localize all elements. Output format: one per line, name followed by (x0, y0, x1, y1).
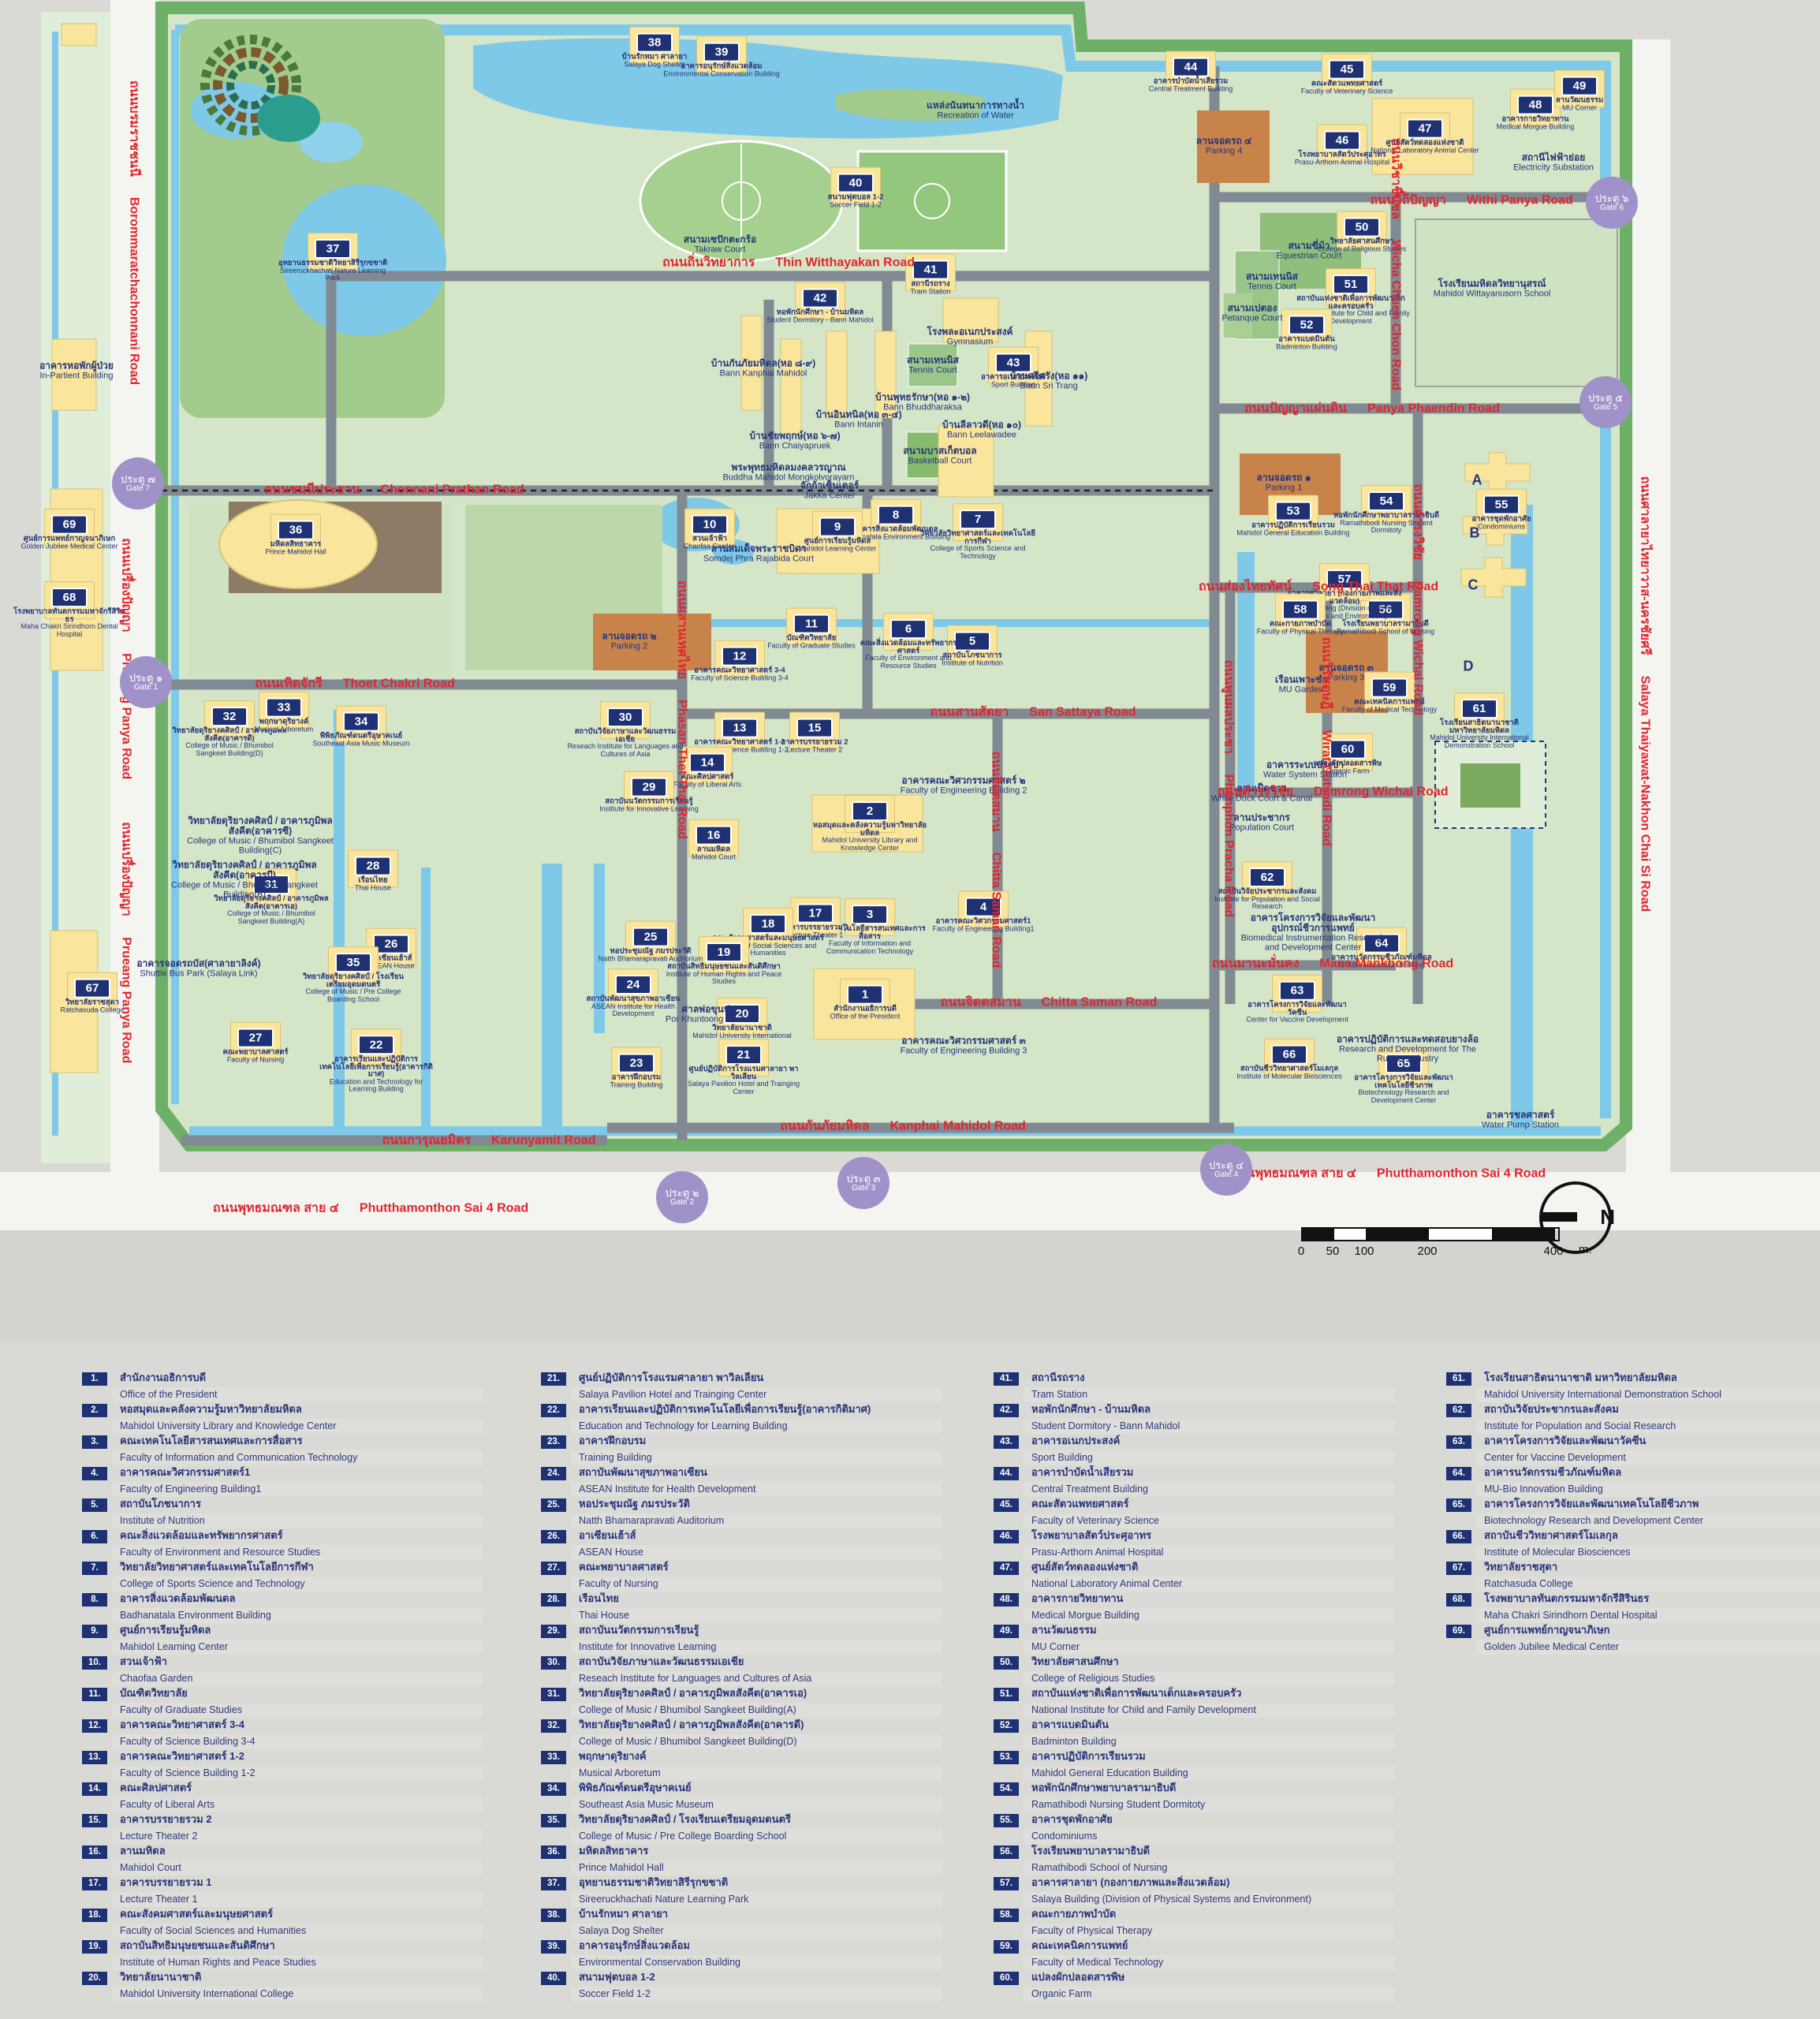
legend-english-name: Soccer Field 1-2 (571, 1987, 942, 2002)
en-text: Organic Farm (1289, 767, 1407, 774)
legend-number-badge: 16. (82, 1845, 107, 1859)
building-shape-21 (718, 1039, 769, 1077)
th-text: อาคารบรรยายรวม 2 (755, 739, 874, 747)
th-text: หอประชุมณัฐ ภมรประวัติ (591, 948, 710, 956)
legend-entry-text: วิทยาลัยดุริยางคศิลป์ / อาคารภูมิพลสังคี… (571, 1718, 942, 1749)
building-shape-52 (1281, 309, 1332, 347)
th-text: อาคารคณะวิศวกรรมศาสตร์ ๓ (889, 1036, 1039, 1046)
marker-caption-26: อาเซียนเฮ้าส์ASEAN House (332, 955, 450, 970)
building-shape-29 (624, 771, 674, 809)
en-text: Faculty of Information and Communication… (811, 941, 929, 955)
th-text: วิทยาลัยดุริยางคศิลป์ / โรงเรียนเตรียมอุ… (294, 973, 412, 988)
th-text: พระพุทธมหิดลมงคลวรญาณ (714, 462, 863, 472)
legend-number-badge: 47. (994, 1562, 1019, 1575)
road-label-23: ถนนพุทธมณฑล สาย ๔Phutthamonthon Sai 4 Ro… (1230, 1164, 1546, 1184)
legend-english-name: Faculty of Veterinary Science (1024, 1513, 1394, 1528)
legend-thai-name: ลานวัฒนธรรม (1024, 1623, 1394, 1638)
th-text: บ้านลีลาวดี(หอ ๑๐) (907, 420, 1057, 430)
badge-text: 52 (1289, 315, 1325, 335)
area-letter-C: C (1468, 577, 1479, 594)
building-shape-8 (871, 499, 921, 537)
legend-number-badge: 12. (82, 1719, 107, 1733)
legend-thai-name: หอประชุมณัฐ ภมรประวัติ (571, 1497, 942, 1512)
en-text: Faculty of Engineering Building1 (924, 925, 1042, 932)
building-shape-25 (625, 921, 676, 959)
legend-thai-name: วิทยาลัยวิทยาศาสตร์และเทคโนโลยีการกีฬา (112, 1560, 483, 1575)
legend-english-name: Faculty of Nursing (571, 1577, 942, 1592)
marker-caption-2: หอสมุดและคลังความรู้มหาวิทยาลัยมหิดลMahi… (811, 822, 929, 852)
landmark-label-8: บ้านพุทธรักษา(หอ ๑-๒)Bann Bhuddharaksa (848, 392, 998, 412)
th-text: ลานสมเด็จพระราชบิดา (684, 543, 834, 554)
map-marker-13: 13อาคารคณะวิทยาศาสตร์ 1-2Faculty of Scie… (681, 718, 799, 754)
building-shape-31 (246, 868, 296, 906)
north-arrow-icon: N (1539, 1181, 1612, 1254)
legend-entry-text: คณะสัตวแพทยศาสตร์Faculty of Veterinary S… (1024, 1497, 1394, 1528)
badge-text: 32 (211, 707, 248, 726)
en-text: Salaya Dog Shelter (595, 61, 714, 68)
legend-english-name: College of Religious Studies (1024, 1671, 1394, 1686)
map-marker-55: 55อาคารชุดพักอาศัยCondominiums (1442, 495, 1561, 531)
legend-thai-name: แปลงผักปลอดสารพิษ (1024, 1970, 1394, 1985)
th-text: ลานจอดรถ ๓ (1271, 662, 1421, 673)
badge-text: 41 (912, 260, 949, 280)
legend-number-badge: 4. (82, 1467, 107, 1480)
legend-number-badge: 62. (1446, 1404, 1471, 1417)
en-text: Mahidol University Library and Knowledge… (811, 838, 929, 852)
legend-entry-text: คณะศิลปศาสตร์Faculty of Liberal Arts (112, 1781, 483, 1812)
building-shape-19 (699, 936, 749, 974)
legend-thai-name: คณะเทคโนโลยีสารสนเทศและการสื่อสาร (112, 1434, 483, 1449)
en-text: Lecture Theater 2 (755, 746, 874, 753)
legend-entry-text: ศูนย์การเรียนรู้มหิดลMahidol Learning Ce… (112, 1623, 483, 1655)
badge-text: 45 (1329, 60, 1365, 80)
legend-number-badge: 60. (994, 1972, 1019, 1985)
en-text: Southeast Asia Music Museum (302, 740, 420, 747)
en-text: Faculty of Medical Technology (1330, 706, 1449, 713)
marker-caption-61: โรงเรียนสาธิตนานาชาติ มหาวิทยาลัยมหิดลMa… (1420, 719, 1538, 749)
landmark-label-21: พระพุทธมหิดลมงคลวรญาณBuddha Mahidol Mong… (714, 462, 863, 482)
legend-number-badge: 6. (82, 1530, 107, 1543)
th-text: อาคารคณะวิทยาศาสตร์ 1-2 (681, 739, 799, 747)
map-marker-31: 31วิทยาลัยดุริยางคศิลป์ / อาคารภูมิพลสัง… (212, 875, 330, 925)
legend-entry-text: สนามฟุตบอล 1-2Soccer Field 1-2 (571, 1970, 942, 2002)
legend-thai-name: วิทยาลัยดุริยางคศิลป์ / อาคารภูมิพลสังคี… (571, 1718, 942, 1733)
map-marker-23: 23อาคารฝึกอบรมTraining Building (577, 1054, 696, 1089)
th-text: อาคารโครงการวิจัยและพัฒนาวัคซีน (1238, 1002, 1356, 1017)
map-marker-3: 3คณะเทคโนโลยีสารสนเทศและการสื่อสารFacult… (811, 905, 929, 955)
map-marker-25: 25หอประชุมณัฐ ภมรประวัติNatth Bhamarapra… (591, 927, 710, 963)
legend-number-badge: 14. (82, 1782, 107, 1796)
en-text: Recreation of Water (901, 111, 1050, 121)
th-text: ประตู ๓ (846, 1174, 880, 1185)
en-text: Gate 5 (1594, 404, 1617, 412)
building-shape-13 (714, 712, 765, 750)
en-text: Faculty of Physical Therapy (1241, 628, 1359, 635)
th-text: ถนนเปรื่องปัญญา (120, 538, 133, 633)
th-text: คณะเทคนิคการแพทย์ (1330, 699, 1449, 707)
gate-6: ประตู ๖Gate 6 (1586, 177, 1638, 229)
legend-entry-text: ลานวัฒนธรรมMU Corner (1024, 1623, 1394, 1655)
legend-entry-text: สถาบันพัฒนาสุขภาพอาเซียนASEAN Institute … (571, 1465, 942, 1497)
en-text: Tennis Court (858, 366, 1008, 375)
en-text: Education and Technology for Learning Bu… (317, 1078, 435, 1092)
en-text: Biomedical Instrumentation Research and … (1238, 934, 1388, 953)
building-shape-50 (1337, 211, 1387, 249)
th-text: พิพิธภัณฑ์ดนตรีอุษาคเนย์ (302, 733, 420, 741)
badge-text: 50 (1344, 218, 1380, 237)
legend-english-name: Mahidol University Library and Knowledge… (112, 1419, 483, 1434)
en-text: ASEAN Institute for Health Development (574, 1003, 692, 1017)
th-text: โรงเรียนมหิดลวิทยานุสรณ์ (1417, 278, 1567, 289)
building-shape-3 (845, 898, 895, 936)
en-text: Phunphon Pracha Road (1222, 774, 1236, 917)
th-text: บ้านกันภัยมหิดล(หอ ๘-๙) (688, 358, 838, 368)
marker-caption-19: สถาบันสิทธิมนุษยชนและสันติศึกษาInstitute… (665, 963, 783, 985)
map-marker-60: 60แปลงผักปลอดสารพิษOrganic Farm (1289, 740, 1407, 775)
th-text: ถนนปัญญาแผ่นดิน (1244, 402, 1347, 416)
th-text: ลานจอดรถ ๔ (1149, 136, 1299, 146)
th-text: ถนนกันภัยมหิดล (780, 1120, 869, 1133)
legend-thai-name: อาคารนวัตกรรมชีวภัณฑ์มหิดล (1476, 1465, 1820, 1480)
en-text: College of Sports Science and Technology (919, 546, 1037, 560)
legend-number-badge: 25. (541, 1498, 566, 1512)
badge-text: 53 (1275, 502, 1311, 521)
th-text: สนามเซปักตะกร้อ (645, 234, 795, 244)
en-text: Natth Bhamarapravati Auditorium (591, 955, 710, 962)
legend-english-name: Center for Vaccine Development (1476, 1450, 1820, 1465)
en-text: Lecture Theater 1 (756, 931, 875, 939)
marker-caption-46: โรงพยาบาลสัตว์ประศุอาทรPrasu-Arthorn Ani… (1283, 151, 1401, 166)
th-text: สถานีรถราง (871, 281, 990, 289)
legend-number-badge: 41. (994, 1372, 1019, 1386)
legend-thai-name: อาคารอเนกประสงค์ (1024, 1434, 1394, 1449)
th-text: ถนนบรมราชชนนี (128, 80, 141, 177)
legend-english-name: Prasu-Arthorn Animal Hospital (1024, 1545, 1394, 1560)
map-marker-46: 46โรงพยาบาลสัตว์ประศุอาทรPrasu-Arthorn A… (1283, 131, 1401, 166)
landmark-label-22: จักก้าเซ็นเตอร์Jakka Center (755, 480, 904, 500)
gate-3: ประตู ๓Gate 3 (837, 1157, 889, 1209)
building-shape-58 (1275, 594, 1326, 632)
legend-english-name: Ratchasuda College (1476, 1577, 1820, 1592)
marker-caption-9: ศูนย์การเรียนรู้มหิดลMahidol Learning Ce… (778, 538, 897, 553)
en-text: Institute of Human Rights and Peace Stud… (665, 971, 783, 985)
legend-entry-text: สวนเจ้าฟ้าChaofaa Garden (112, 1655, 483, 1686)
en-text: Prasu-Arthorn Animal Hospital (1283, 159, 1401, 166)
marker-caption-48: อาคารกายวิทยาทานMedical Morgue Building (1476, 116, 1594, 131)
map-marker-65: 65อาคารโครงการวิจัยและพัฒนาเทคโนโลยีชีวภ… (1344, 1054, 1463, 1104)
en-text: Bann Leelawadee (907, 431, 1057, 440)
legend-entry-text: ศูนย์ปฏิบัติการโรงแรมศาลายา พาวิลเลียนSa… (571, 1371, 942, 1402)
marker-caption-49: ลานวัฒนธรรมMU Corner (1520, 97, 1639, 112)
th-text: อาเซียนเฮ้าส์ (332, 955, 450, 963)
th-text: อาคารปฏิบัติการเรียนรวม (1234, 522, 1352, 530)
legend-number-badge: 50. (994, 1656, 1019, 1670)
building-shape-59 (1364, 672, 1415, 710)
legend-number-badge: 28. (541, 1593, 566, 1607)
map-marker-49: 49ลานวัฒนธรรมMU Corner (1520, 77, 1639, 112)
legend-number-badge: 1. (82, 1372, 107, 1386)
legend-entry-text: อาคารกายวิทยาทานMedical Morgue Building (1024, 1592, 1394, 1623)
marker-caption-60: แปลงผักปลอดสารพิษOrganic Farm (1289, 760, 1407, 775)
legend-number-badge: 32. (541, 1719, 566, 1733)
en-text: Reseach Institute for Languages and Cult… (566, 744, 684, 758)
th-text: สนามบาสเก็ตบอล (865, 446, 1015, 456)
th-text: วิทยาลัยดุริยางคศิลป์ / อาคารภูมิพลสังคี… (185, 816, 335, 837)
building-shape-16 (688, 819, 739, 857)
badge-text: 3 (852, 905, 888, 924)
legend-number-badge: 30. (541, 1656, 566, 1670)
en-text: Tennis Court (1197, 282, 1347, 292)
th-text: อาคารชุดพักอาศัย (1442, 516, 1561, 524)
en-text: Equestrian Court (1234, 252, 1384, 261)
th-text: ถนนพูนผลประชา (1222, 660, 1236, 754)
th-text: โรงพละอเนกประสงค์ (895, 327, 1045, 337)
badge-text: 65 (1386, 1054, 1422, 1073)
legend-entry-text: วิทยาลัยวิทยาศาสตร์และเทคโนโลยีการกีฬาCo… (112, 1560, 483, 1592)
legend-number-badge: 40. (541, 1972, 566, 1985)
marker-caption-16: ลานมหิดลMahidol Court (655, 846, 773, 861)
th-text: โรงพยาบาลสัตว์ประศุอาทร (1283, 151, 1401, 159)
badge-text: 67 (74, 979, 110, 998)
th-text: ถนนศาลายาไทยาวาส-นครชัยศรี (1639, 476, 1652, 655)
badge-text: 27 (237, 1028, 274, 1048)
legend-number-badge: 11. (82, 1688, 107, 1701)
th-text: บ้านชัยพฤกษ์(หอ ๖-๗) (720, 431, 870, 441)
legend-english-name: ASEAN Institute for Health Development (571, 1482, 942, 1497)
legend-entry-text: อาคารคณะวิทยาศาสตร์ 3-4Faculty of Scienc… (112, 1718, 483, 1749)
legend-entry-text: เรือนไทยThai House (571, 1592, 942, 1623)
legend-number-badge: 56. (994, 1845, 1019, 1859)
th-text: บ้านอินทนิล(หอ ๓-๔) (784, 409, 934, 420)
th-text: อุทยานธรรมชาติวิทยาสิรีรุกขชาติ (274, 259, 392, 267)
en-text: Badhanatala Environment Building (837, 533, 955, 540)
en-text: Salaya Pavilion Hotel and Trainging Cent… (684, 1081, 803, 1095)
legend-thai-name: อาคารสิ่งแวดล้อมพัฒนดล (112, 1592, 483, 1607)
legend-number-badge: 7. (82, 1562, 107, 1575)
map-marker-22: 22อาคารเรียนและปฏิบัติการเทคโนโลยีเพื่อก… (317, 1035, 435, 1092)
en-text: Petanque Court (1177, 314, 1327, 323)
legend-english-name: Ramathibodi School of Nursing (1024, 1860, 1394, 1875)
en-text: Parking 3 (1271, 674, 1421, 683)
marker-caption-41: สถานีรถรางTram Station (871, 281, 990, 296)
landmark-label-27: อาคารระบบประปาWater System Station (1230, 759, 1380, 779)
landmark-label-4: สนามบาสเก็ตบอลBasketball Court (865, 446, 1015, 465)
scale-segment-3 (1429, 1229, 1492, 1240)
road-label-20: ถนนวิชาชื่นชลWicha Chuen Chon Road (1386, 138, 1406, 390)
building-shape-26 (366, 928, 416, 966)
north-arrow-bar (1541, 1212, 1577, 1222)
marker-caption-44: อาคารบำบัดน้ำเสียรวมCentral Treatment Bu… (1132, 78, 1250, 93)
legend-thai-name: โรงพยาบาลสัตว์ประศุอาทร (1024, 1528, 1394, 1543)
legend-entry-text: พิพิธภัณฑ์ดนตรีอุษาคเนย์Southeast Asia M… (571, 1781, 942, 1812)
legend-number-badge: 18. (82, 1909, 107, 1922)
building-shape-9 (812, 511, 863, 549)
gate-2: ประตู ๒Gate 2 (656, 1171, 708, 1223)
building-shape-53 (1268, 495, 1318, 533)
legend-english-name: Lecture Theater 1 (112, 1892, 483, 1907)
legend-thai-name: สถาบันวิจัยภาษาและวัฒนธรรมเอเชีย (571, 1655, 942, 1670)
building-shape-42 (795, 282, 845, 320)
north-label: N (1600, 1205, 1615, 1230)
legend-thai-name: อาคารปฏิบัติการเรียนรวม (1024, 1749, 1394, 1764)
scale-segment-1 (1334, 1229, 1366, 1240)
marker-caption-34: พิพิธภัณฑ์ดนตรีอุษาคเนย์Southeast Asia M… (302, 733, 420, 748)
road-label-21: ถนนศาลายาไทยาวาส-นครชัยศรีSalaya Thaiyaw… (1635, 476, 1655, 912)
th-text: บ้านพุทธรักษา(หอ ๑-๒) (848, 392, 998, 402)
landmark-label-15: โรงเรียนมหิดลวิทยานุสรณ์Mahidol Wittayan… (1417, 278, 1567, 298)
legend-thai-name: อาคารกายวิทยาทาน (1024, 1592, 1394, 1607)
badge-text: 17 (797, 904, 834, 924)
legend-english-name: Faculty of Science Building 1-2 (112, 1766, 483, 1781)
marker-caption-45: คณะสัตวแพทยศาสตร์Faculty of Veterinary S… (1288, 80, 1406, 95)
landmark-label-26: เรือนเพาะชำMU Garden (1226, 674, 1376, 694)
building-shape-35 (328, 946, 379, 984)
map-marker-69: 69ศูนย์การแพทย์กาญจนาภิเษกGolden Jubilee… (10, 515, 129, 550)
legend-entry-text: อาคารบำบัดน้ำเสียรวมCentral Treatment Bu… (1024, 1465, 1394, 1497)
badge-text: 36 (278, 521, 314, 540)
en-text: MU Corner (1520, 104, 1639, 111)
legend-english-name: Mahidol Learning Center (112, 1640, 483, 1655)
gate-7: ประตู ๗Gate 7 (112, 457, 164, 509)
badge-text: 14 (689, 753, 725, 773)
legend-entry-text: วิทยาลัยราชสุดาRatchasuda College (1476, 1560, 1820, 1592)
th-text: แหล่งนันทนาการทางน้ำ (901, 100, 1050, 110)
badge-text: 21 (725, 1045, 762, 1065)
legend-english-name: Ramathibodi Nursing Student Dormitoty (1024, 1797, 1394, 1812)
badge-text: 13 (722, 718, 758, 738)
scale-segment-0 (1303, 1229, 1334, 1240)
building-shape-40 (830, 167, 881, 205)
landmark-label-25: อาคารจอดรถบัส(ศาลายาลิงค์)Shuttle Bus Pa… (124, 958, 274, 978)
legend-number-badge: 46. (994, 1530, 1019, 1543)
legend-thai-name: หอพักนักศึกษาพยาบาลรามาธิบดี (1024, 1781, 1394, 1796)
legend-thai-name: อาคารชุดพักอาศัย (1024, 1812, 1394, 1827)
road-label-12: ถนนจิตตสมานChitta Saman Road (941, 993, 1158, 1013)
legend-entry-text: สถาบันแห่งชาติเพื่อการพัฒนาเด็กและครอบคร… (1024, 1686, 1394, 1718)
legend-number-badge: 19. (82, 1940, 107, 1954)
road-label-8: ถนนส่องไทยทัศน์Song Thai That Road (1199, 577, 1438, 597)
en-text: Faculty of Veterinary Science (1288, 88, 1406, 95)
en-text: Soccer Field 1-2 (796, 201, 915, 208)
marker-caption-23: อาคารฝึกอบรมTraining Building (577, 1074, 696, 1089)
legend-thai-name: วิทยาลัยศาสนศึกษา (1024, 1655, 1394, 1670)
th-text: หอสมุดและคลังความรู้มหาวิทยาลัยมหิดล (811, 822, 929, 837)
area-letter-D: D (1464, 659, 1474, 675)
map-marker-34: 34พิพิธภัณฑ์ดนตรีอุษาคเนย์Southeast Asia… (302, 712, 420, 748)
landmark-label-3: โรงพละอเนกประสงค์Gymnasium (895, 327, 1045, 346)
en-text: Mahidol Wittayanusorn School (1417, 289, 1567, 299)
scale-tick-100: 100 (1354, 1245, 1374, 1258)
legend-thai-name: หอสมุดและคลังความรู้มหาวิทยาลัยมหิดล (112, 1402, 483, 1417)
landmark-label-11: สนามขี่ม้าEquestrian Court (1234, 241, 1384, 260)
landmark-label-17: ลานจอดรถ ๔Parking 4 (1149, 136, 1299, 155)
legend-number-badge: 35. (541, 1814, 566, 1827)
building-shape-56 (1360, 594, 1411, 632)
th-text: โรงเรียนสาธิตนานาชาติ มหาวิทยาลัยมหิดล (1420, 719, 1538, 734)
th-text: อาคารอเนกประสงค์ (954, 374, 1072, 382)
legend-thai-name: คณะเทคนิคการแพทย์ (1024, 1939, 1394, 1954)
legend-thai-name: อาเซียนเฮ้าส์ (571, 1528, 942, 1543)
map-marker-32: 32วิทยาลัยดุริยางคศิลป์ / อาคารภูมิพลสัง… (170, 707, 289, 757)
map-marker-17: 17อาคารบรรยายรวม 1Lecture Theater 1 (756, 904, 875, 939)
marker-caption-13: อาคารคณะวิทยาศาสตร์ 1-2Faculty of Scienc… (681, 739, 799, 754)
legend-thai-name: สถาบันนวัตกรรมการเรียนรู้ (571, 1623, 942, 1638)
legend-entry-text: อาคารศาลายา (กองกายภาพและสิ่งแวดล้อม)Sal… (1024, 1875, 1394, 1907)
marker-caption-47: ศูนย์สัตว์ทดลองแห่งชาติNational Laborato… (1366, 140, 1484, 155)
legend-english-name: Faculty of Environment and Resource Stud… (112, 1545, 483, 1560)
marker-caption-38: บ้านรักหมา ศาลายาSalaya Dog Shelter (595, 54, 714, 69)
building-shape-43 (988, 347, 1039, 385)
en-text: Mahidol Learning Center (778, 545, 897, 552)
legend-entry-text: สถาบันนวัตกรรมการเรียนรู้Institute for I… (571, 1623, 942, 1655)
map-marker-30: 30สถาบันวิจัยภาษาและวัฒนธรรมเอเชียReseac… (566, 707, 684, 758)
badge-text: 5 (954, 632, 990, 651)
marker-caption-59: คณะเทคนิคการแพทย์Faculty of Medical Tech… (1330, 699, 1449, 714)
legend-entry-text: อาคารฝึกอบรมTraining Building (571, 1434, 942, 1465)
en-text: ASEAN House (332, 962, 450, 969)
th-text: อาคารอนุรักษ์สิ่งแวดล้อม (662, 63, 781, 71)
map-marker-33: 33พฤกษาดุริยางค์Musical Arboretum (225, 698, 343, 733)
road-label-19: ถนนวิรัชดุษฎีWirat Dutsadi Road (1317, 636, 1337, 845)
marker-caption-8: อาคารสิ่งแวดล้อมพัฒนดลBadhanatala Enviro… (837, 526, 955, 541)
en-text: Ramathibodi Nursing Student Dormitoty (1327, 520, 1445, 534)
legend-thai-name: อาคารบรรยายรวม 2 (112, 1812, 483, 1827)
building-shape-65 (1378, 1047, 1429, 1085)
legend-english-name: Reseach Institute for Languages and Cult… (571, 1671, 942, 1686)
legend-entry-text: หอสมุดและคลังความรู้มหาวิทยาลัยมหิดลMahi… (112, 1402, 483, 1434)
legend-thai-name: บัณฑิตวิทยาลัย (112, 1686, 483, 1701)
road-label-2: ถนนเปรื่องปัญญาPrueang Panya Road (117, 822, 136, 1063)
road-label-4: ถนนเทิดจักรีThoet Chakri Road (255, 674, 455, 694)
en-text: Water System Station (1230, 771, 1380, 780)
th-text: ศูนย์การแพทย์กาญจนาภิเษก (10, 536, 129, 543)
legend-entry-text: สถาบันสิทธิมนุษยชนและสันติศึกษาInstitute… (112, 1939, 483, 1970)
th-text: อาคารคณะวิศวกรรมศาสตร์1 (924, 918, 1042, 926)
en-text: Mahidol University International Demonst… (1420, 735, 1538, 749)
th-text: ถนนมานะมั่นคง (1212, 957, 1300, 971)
en-text: Gate 2 (670, 1199, 694, 1207)
map-marker-66: 66สถาบันชีววิทยาศาสตร์โมเลกุลInstitute o… (1230, 1045, 1348, 1080)
en-text: Por Khuntoong Shrine (633, 1015, 783, 1024)
legend-number-badge: 58. (994, 1909, 1019, 1922)
map-marker-20: 20วิทยาลัยนานาชาติMahidol University Int… (683, 1004, 801, 1047)
legend-thai-name: สถาบันแห่งชาติเพื่อการพัฒนาเด็กและครอบคร… (1024, 1686, 1394, 1701)
th-text: ลานจอดรถ ๑ (1209, 472, 1359, 483)
map-marker-38: 38บ้านรักหมา ศาลายาSalaya Dog Shelter (595, 33, 714, 69)
legend-number-badge: 66. (1446, 1530, 1471, 1543)
th-text: สถาบันวิจัยภาษาและวัฒนธรรมเอเชีย (566, 728, 684, 743)
en-text: Parking 4 (1149, 147, 1299, 156)
th-text: ถนนวิชาชื่นชล (1389, 138, 1403, 219)
marker-caption-12: อาคารคณะวิทยาศาสตร์ 3-4Faculty of Scienc… (681, 667, 799, 682)
en-text: Sport Building (954, 381, 1072, 388)
th-text: ถนนดำรงวิชัย (1412, 483, 1425, 560)
legend-number-badge: 69. (1446, 1625, 1471, 1638)
legend-english-name: Lecture Theater 2 (112, 1829, 483, 1844)
en-text: Thoet Chakri Road (343, 677, 455, 691)
en-text: Shuttle Bus Park (Salaya Link) (124, 969, 274, 979)
legend-english-name: Thai House (571, 1608, 942, 1623)
th-text: สนามเทนนิส (858, 355, 1008, 365)
en-text: Faculty of Social Sciences and Humanitie… (709, 942, 827, 957)
legend-thai-name: คณะกายภาพบำบัด (1024, 1907, 1394, 1922)
legend-number-badge: 24. (541, 1467, 566, 1480)
building-shape-6 (883, 613, 934, 651)
map-marker-27: 27คณะพยาบาลศาสตร์Faculty of Nursing (196, 1028, 315, 1064)
marker-caption-15: อาคารบรรยายรวม 2Lecture Theater 2 (755, 739, 874, 754)
map-marker-9: 9ศูนย์การเรียนรู้มหิดลMahidol Learning C… (778, 517, 897, 553)
legend-entry-text: อาคารโครงการวิจัยและพัฒนาวัคซีนCenter fo… (1476, 1434, 1820, 1465)
